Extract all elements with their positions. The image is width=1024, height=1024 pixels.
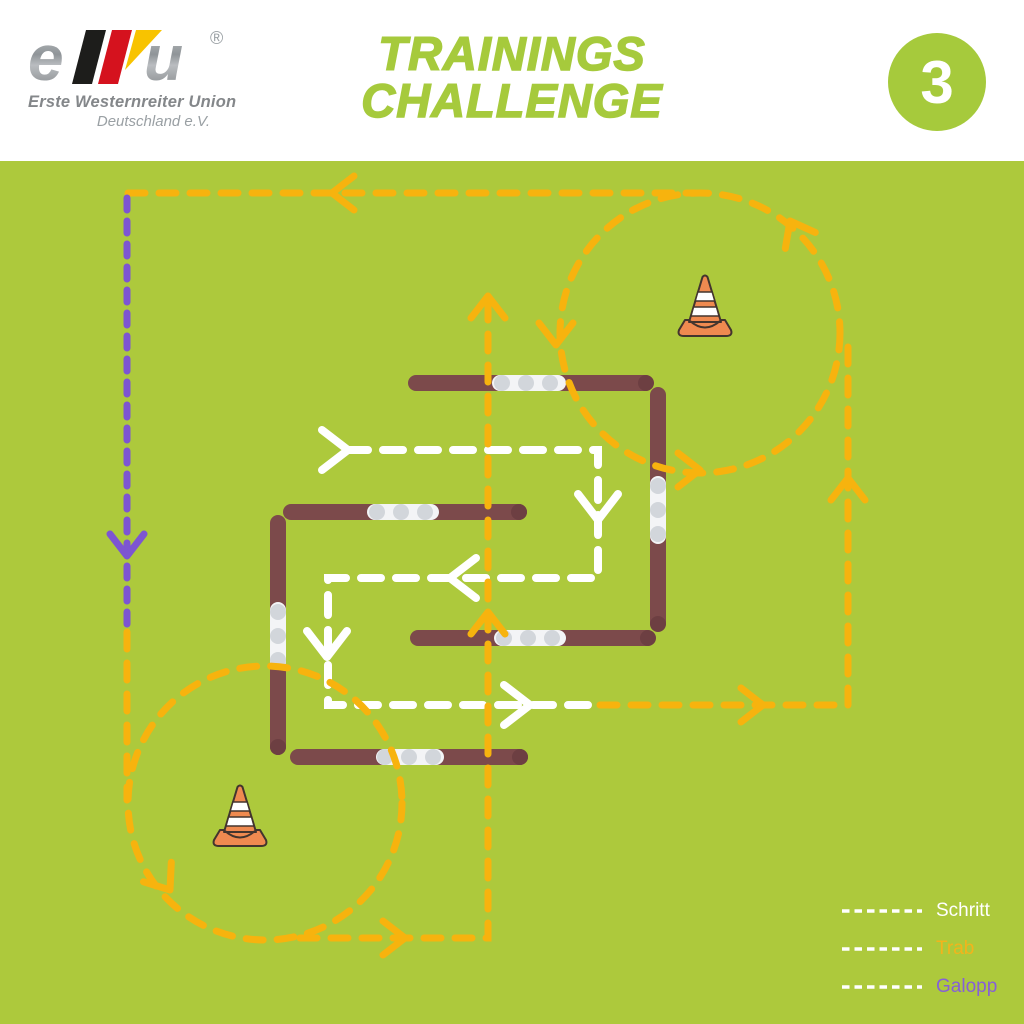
gait-legend: Schritt Trab Galopp [840, 884, 998, 998]
legend-row-galopp: Galopp [840, 976, 998, 998]
legend-dash-line [840, 945, 924, 953]
legend-label-trab: Trab [936, 938, 998, 960]
legend-label-schritt: Schritt [936, 900, 998, 922]
title-line-2: CHALLENGE [262, 77, 762, 124]
logo-subtitle-1: Erste Westernreiter Union [28, 93, 238, 112]
traffic-cone-icon [214, 786, 267, 847]
arrow-right-icon [322, 430, 348, 470]
trot-circle-bottom-left [128, 666, 402, 940]
trot-right-line [600, 340, 848, 705]
registered-trademark-icon: ® [210, 28, 223, 48]
walk-path [328, 450, 600, 705]
trainings-challenge-poster: e u ® Erste Westernreiter Union Deutschl… [0, 0, 1024, 1024]
legend-dash-line [840, 907, 924, 915]
ewu-logo-mark: e u ® [28, 26, 238, 88]
exercise-number-badge: 3 [888, 33, 986, 131]
logo-letter-e: e [28, 26, 64, 88]
logo-letter-u: u [144, 26, 183, 88]
header: e u ® Erste Westernreiter Union Deutschl… [0, 0, 1024, 161]
ewu-logo: e u ® Erste Westernreiter Union Deutschl… [28, 26, 238, 130]
legend-label-galopp: Galopp [936, 976, 998, 998]
legend-dash-line [840, 983, 924, 991]
page-title: TRAININGS CHALLENGE [262, 30, 762, 124]
legend-row-trab: Trab [840, 938, 998, 960]
legend-row-schritt: Schritt [840, 900, 998, 922]
traffic-cone-icon [679, 276, 732, 337]
logo-subtitle-2: Deutschland e.V. [28, 113, 238, 130]
title-line-1: TRAININGS [262, 30, 762, 77]
arrow-down-icon [539, 323, 573, 345]
